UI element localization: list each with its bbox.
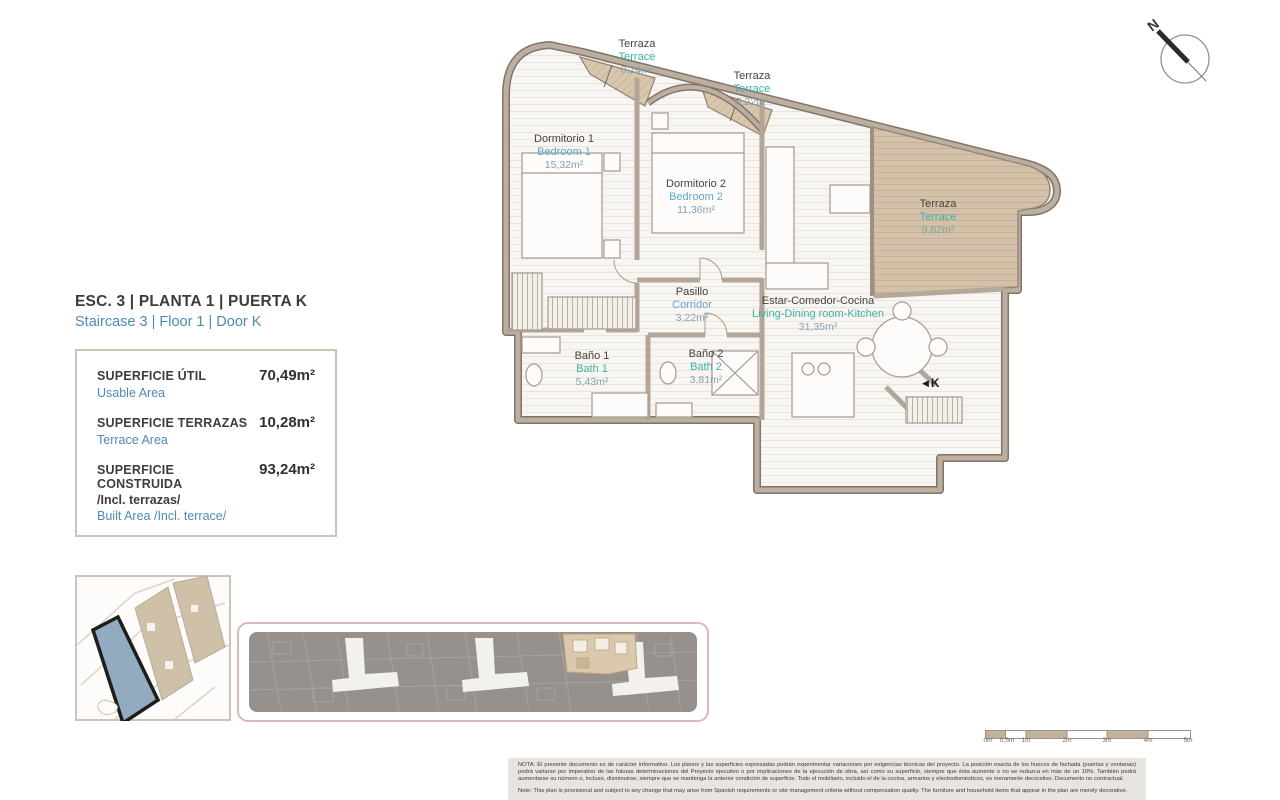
bed-1-icon (522, 153, 602, 258)
page-title: ESC. 3 | PLANTA 1 | PUERTA K (75, 293, 307, 311)
plan-header: ESC. 3 | PLANTA 1 | PUERTA K Staircase 3… (75, 293, 307, 330)
built-area-row: SUPERFICIE CONSTRUIDA 93,24m² /Incl. ter… (97, 461, 315, 523)
sofa-icon (766, 147, 794, 265)
dining-table-icon (872, 317, 932, 377)
side-table-icon (830, 185, 870, 213)
disclaimer-spanish: NOTA: El presente documento es de caráct… (518, 762, 1136, 783)
terrace-area-row: SUPERFICIE TERRAZAS 10,28m² Terrace Area (97, 414, 315, 447)
door-arrow-icon: ◀ (922, 378, 929, 389)
floorplan-drawing (500, 35, 1070, 500)
compass: N (1140, 15, 1220, 90)
scale-bar: 0m 0,5m 1m 2m 3m 4m 5m (985, 726, 1197, 748)
usable-area-value: 70,49m² (259, 367, 315, 384)
usable-area-row: SUPERFICIE ÚTIL 70,49m² Usable Area (97, 367, 315, 400)
sink-icon (522, 337, 560, 353)
terrace-area-value: 10,28m² (259, 414, 315, 431)
toilet-icon (526, 364, 542, 386)
disclaimer-english: Note: This plan is provisional and subje… (518, 788, 1136, 795)
legal-disclaimer: NOTA: El presente documento es de caráct… (508, 758, 1146, 800)
door-k-marker: ◀ K (922, 376, 940, 390)
sink-icon (656, 403, 692, 417)
floorplan-page: Terraza Terrace 0,24m² Terraza Terrace 0… (0, 0, 1280, 800)
page-subtitle: Staircase 3 | Floor 1 | Door K (75, 314, 307, 330)
wardrobe-icon (512, 273, 542, 330)
highlighted-unit (563, 634, 637, 674)
window-icon (906, 397, 962, 423)
scale-bar-graphic (985, 730, 1191, 739)
site-location-map (75, 575, 231, 721)
bed-2-icon (652, 133, 744, 233)
surface-areas-box: SUPERFICIE ÚTIL 70,49m² Usable Area SUPE… (75, 349, 337, 537)
building-floor-strip (237, 622, 709, 722)
wardrobe-icon (548, 297, 636, 329)
toilet-icon (660, 362, 676, 384)
built-area-value: 93,24m² (259, 461, 315, 478)
bathtub-icon (592, 393, 648, 417)
